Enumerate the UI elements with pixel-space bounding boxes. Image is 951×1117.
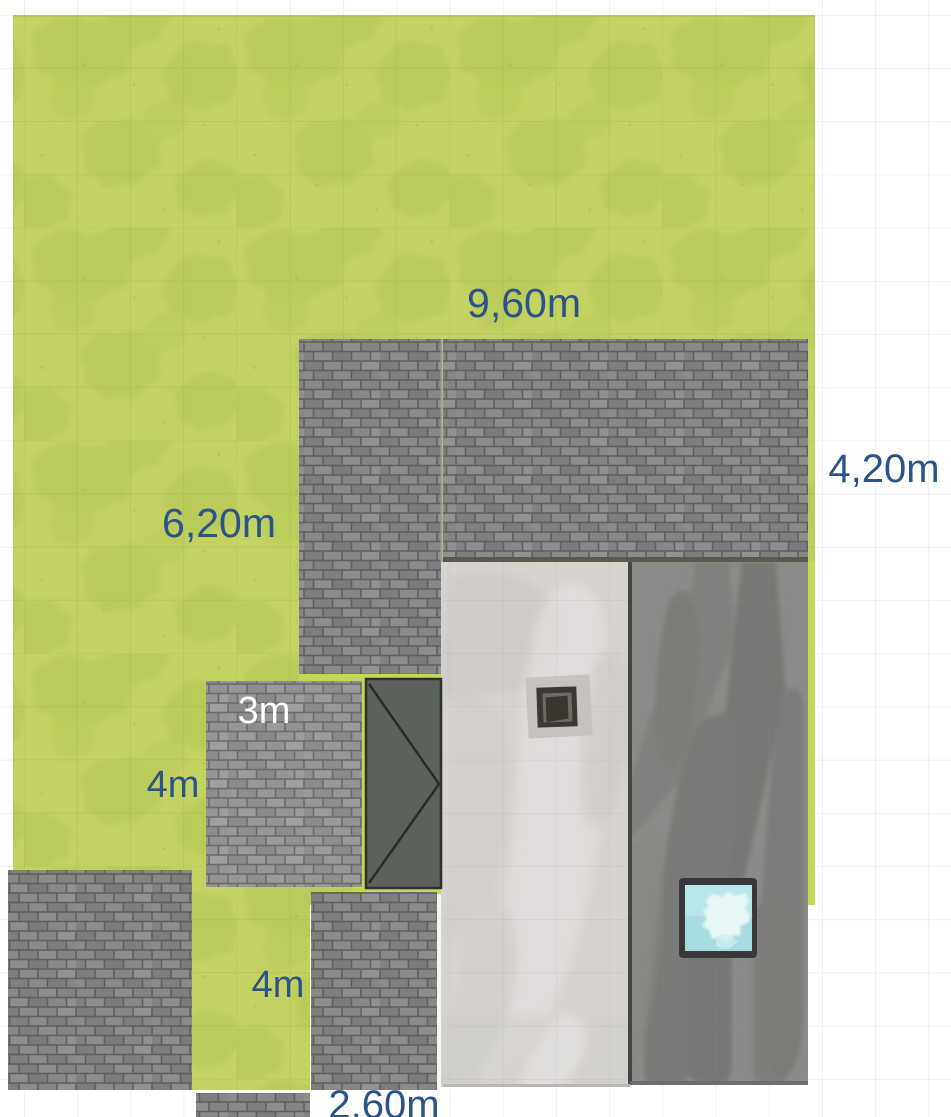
svg-text:6,20m: 6,20m [162,500,276,546]
svg-text:3m: 3m [238,690,291,732]
svg-text:4,20m: 4,20m [828,447,939,491]
svg-text:4m: 4m [252,964,305,1006]
svg-text:4m: 4m [147,764,200,806]
svg-text:9,60m: 9,60m [467,280,581,326]
svg-text:2,60m: 2,60m [328,1083,439,1117]
